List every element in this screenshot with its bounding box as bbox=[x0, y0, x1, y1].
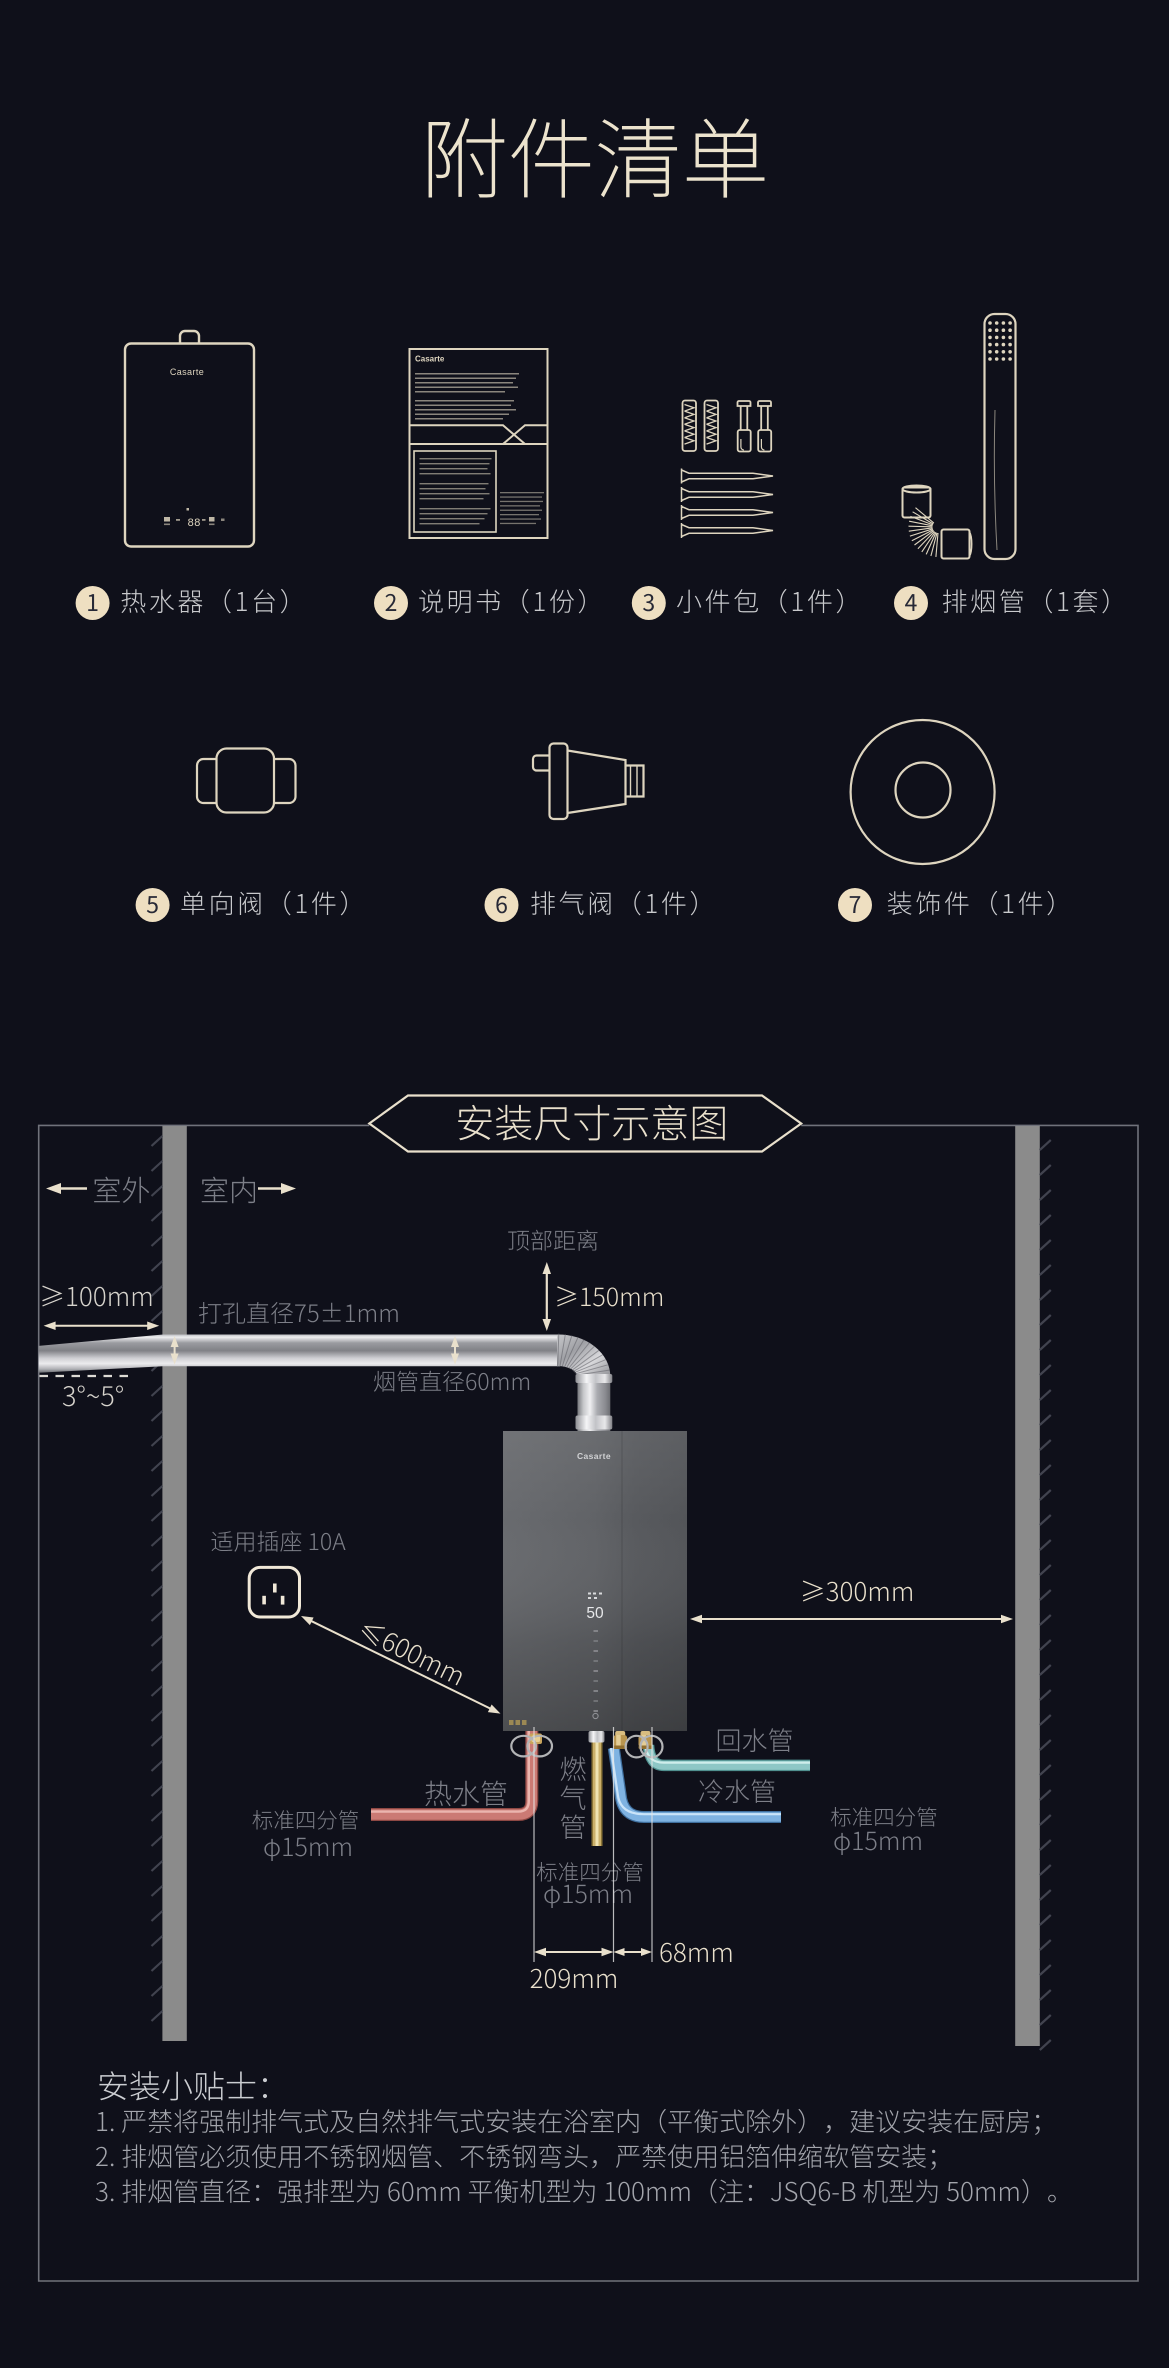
svg-text:88: 88 bbox=[187, 518, 200, 530]
svg-text:Casarte: Casarte bbox=[170, 367, 204, 377]
svg-text:Casarte: Casarte bbox=[577, 1451, 611, 1461]
svg-text:Casarte: Casarte bbox=[415, 355, 445, 364]
svg-text:50: 50 bbox=[586, 1605, 604, 1622]
